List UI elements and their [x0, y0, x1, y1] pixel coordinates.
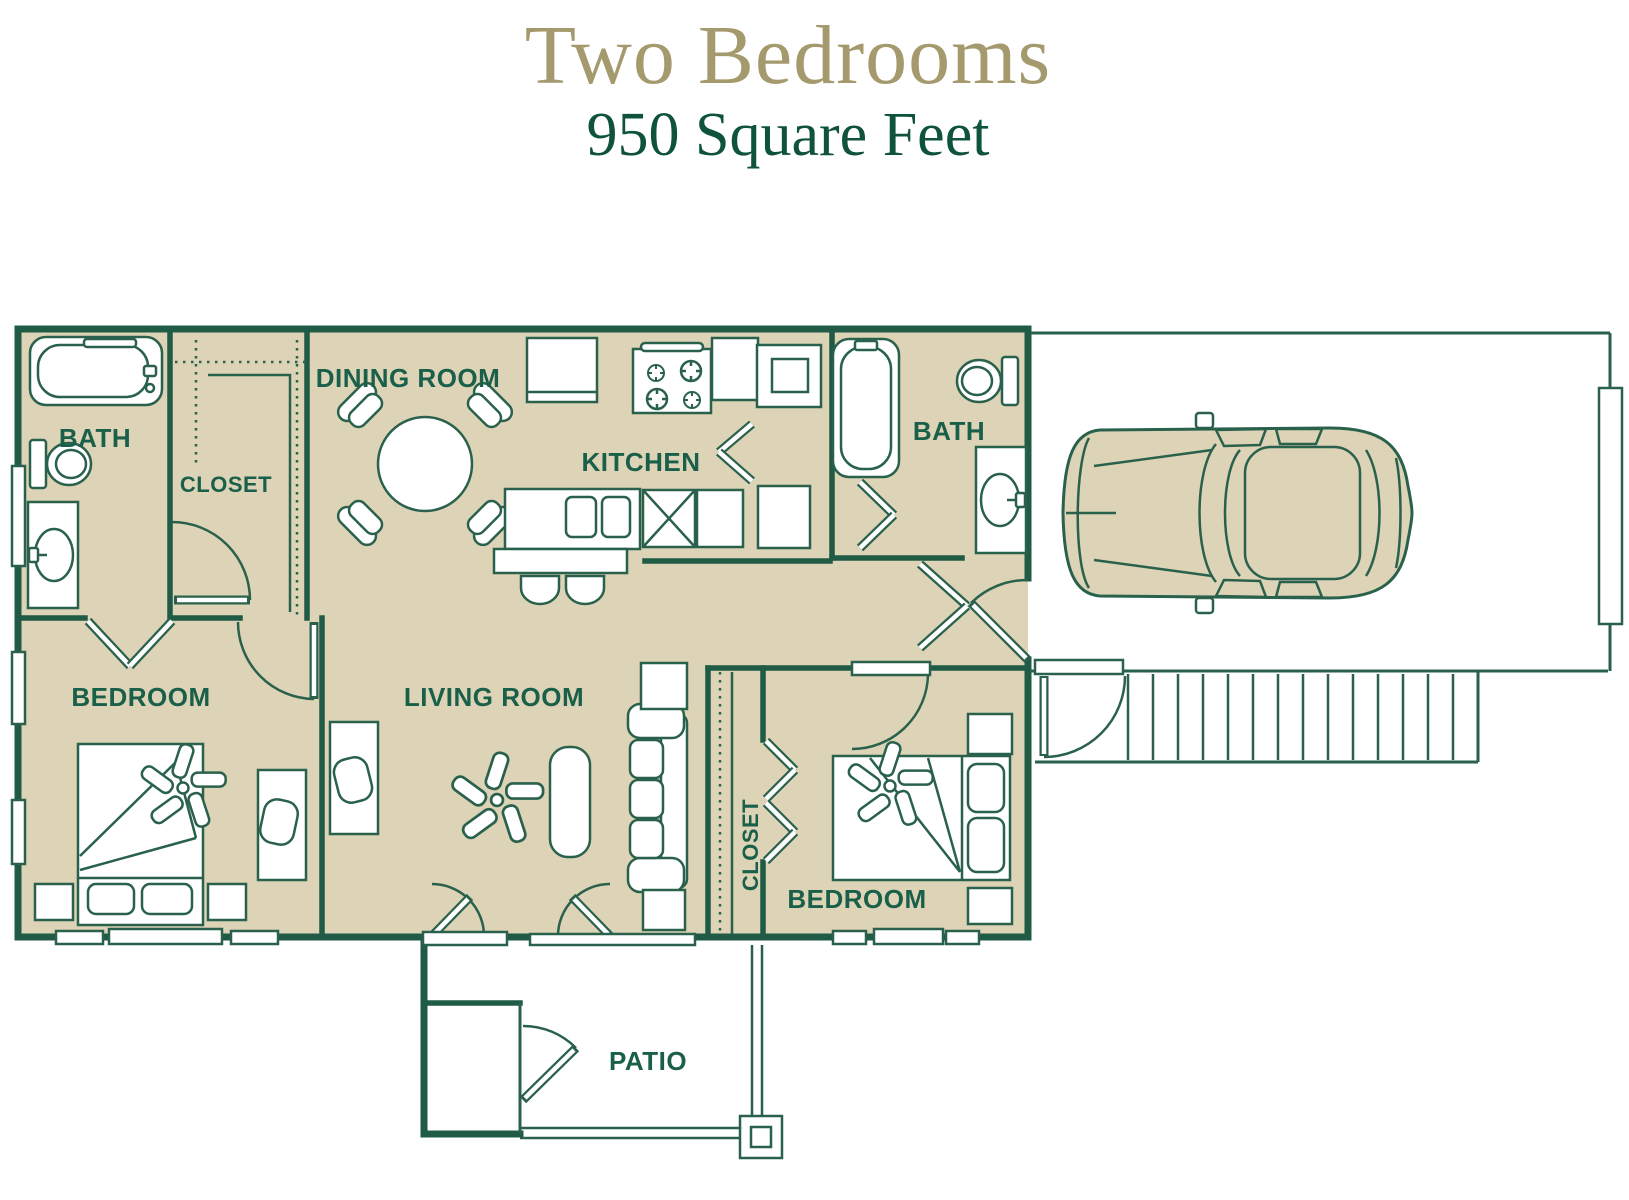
room-label-bedroom-2: BEDROOM	[787, 884, 926, 914]
plan-title-block: Two Bedrooms 950 Square Feet	[0, 14, 1576, 166]
bathtub-icon	[30, 337, 162, 405]
railing	[520, 945, 762, 1138]
window	[56, 931, 103, 944]
nightstand-icon	[968, 714, 1012, 754]
room-label-patio: PATIO	[609, 1046, 687, 1076]
stairs-icon	[1035, 660, 1478, 762]
window	[874, 929, 943, 944]
window	[946, 931, 979, 944]
window	[109, 929, 222, 944]
storage-door-arc	[523, 1026, 576, 1100]
room-label-bedroom-1: BEDROOM	[71, 682, 210, 712]
counter	[758, 486, 810, 548]
sink-vanity-icon	[976, 447, 1026, 553]
sofa-icon	[628, 704, 687, 892]
dining-table-icon	[378, 417, 472, 511]
end-table-icon	[643, 890, 685, 930]
bar-stool-icon	[521, 576, 559, 604]
room-label-closet-1: CLOSET	[180, 472, 272, 497]
pillow	[88, 884, 134, 914]
counter	[712, 338, 758, 400]
sink-vanity-icon	[28, 502, 78, 608]
toilet-icon	[957, 357, 1018, 405]
counter	[697, 490, 743, 547]
garage-door-icon	[1599, 388, 1622, 624]
window	[12, 652, 25, 724]
nightstand-icon	[35, 884, 73, 920]
pillow	[968, 818, 1004, 872]
room-label-living: LIVING ROOM	[404, 682, 584, 712]
window	[231, 931, 278, 944]
refrigerator-icon	[757, 345, 821, 407]
room-label-closet-2: CLOSET	[738, 799, 763, 891]
floor-plan: BATH CLOSET DINING ROOM KITCHEN BATH BED…	[0, 0, 1629, 1200]
room-label-bath-1: BATH	[59, 423, 131, 453]
pillow	[142, 884, 192, 914]
bar-stool-icon	[566, 576, 604, 604]
room-label-bath-2: BATH	[913, 416, 985, 446]
page-title: Two Bedrooms	[0, 14, 1576, 98]
room-label-dining: DINING ROOM	[316, 363, 501, 393]
patio-door-track	[423, 932, 507, 945]
window	[12, 466, 25, 566]
window	[12, 800, 25, 864]
page-subtitle: 950 Square Feet	[0, 104, 1576, 166]
nightstand-icon	[968, 888, 1012, 924]
window	[833, 931, 866, 944]
patio	[423, 932, 782, 1158]
dishwasher-icon	[643, 490, 695, 547]
end-table-icon	[641, 663, 687, 709]
room-label-kitchen: KITCHEN	[581, 447, 700, 477]
coffee-table-icon	[550, 747, 590, 857]
bathtub-icon	[833, 339, 899, 477]
garage	[1030, 333, 1622, 671]
car-icon	[1063, 413, 1412, 613]
patio-door-track	[530, 934, 695, 945]
patio-post-icon	[740, 1116, 782, 1158]
stairs-door-arc	[1035, 660, 1125, 757]
stove-icon	[633, 343, 711, 413]
nightstand-icon	[208, 884, 246, 920]
pillow	[968, 764, 1004, 812]
